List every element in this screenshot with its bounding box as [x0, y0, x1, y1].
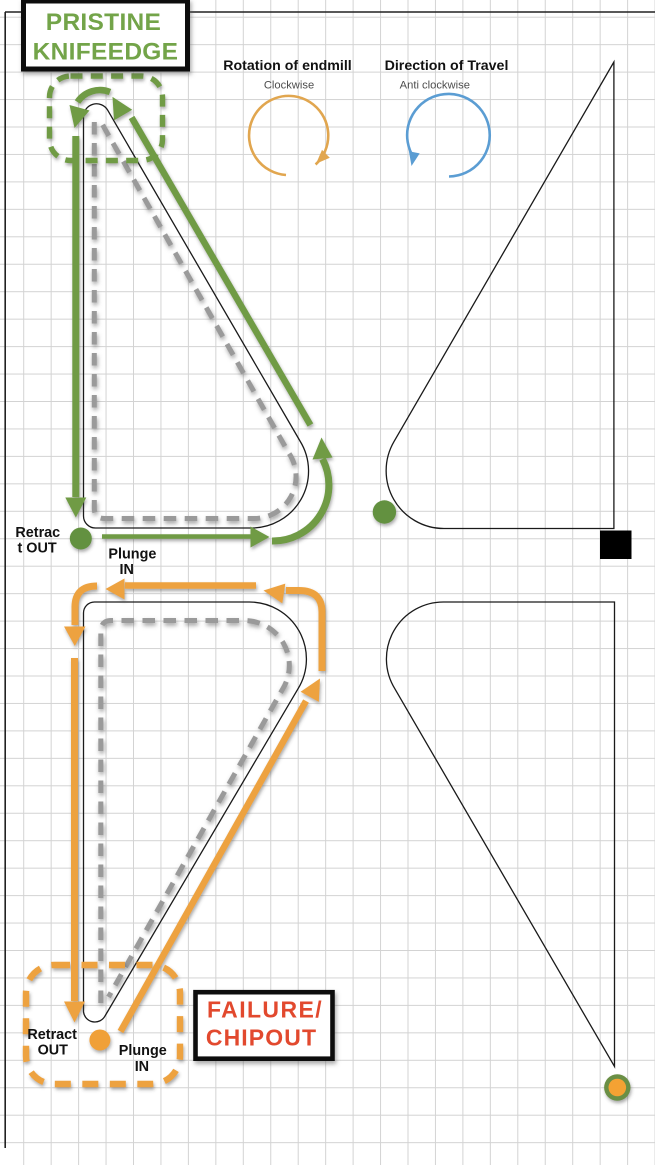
- svg-text:PRISTINE: PRISTINE: [46, 9, 161, 36]
- svg-text:t OUT: t OUT: [18, 541, 57, 557]
- svg-text:Direction of Travel: Direction of Travel: [385, 58, 509, 74]
- svg-text:CHIPOUT: CHIPOUT: [206, 1025, 317, 1051]
- svg-text:Plunge: Plunge: [119, 1043, 167, 1059]
- svg-text:Plunge: Plunge: [108, 547, 156, 563]
- svg-text:Clockwise: Clockwise: [264, 80, 314, 92]
- svg-text:IN: IN: [120, 562, 134, 578]
- svg-text:Retrac: Retrac: [15, 525, 60, 541]
- svg-text:Anti clockwise: Anti clockwise: [400, 80, 470, 92]
- svg-text:IN: IN: [135, 1059, 149, 1075]
- svg-text:OUT: OUT: [38, 1042, 69, 1058]
- svg-text:Rotation of endmill: Rotation of endmill: [223, 58, 351, 74]
- svg-text:FAILURE/: FAILURE/: [207, 997, 323, 1023]
- svg-text:KNIFEEDGE: KNIFEEDGE: [33, 39, 179, 66]
- svg-text:Retract: Retract: [27, 1027, 77, 1043]
